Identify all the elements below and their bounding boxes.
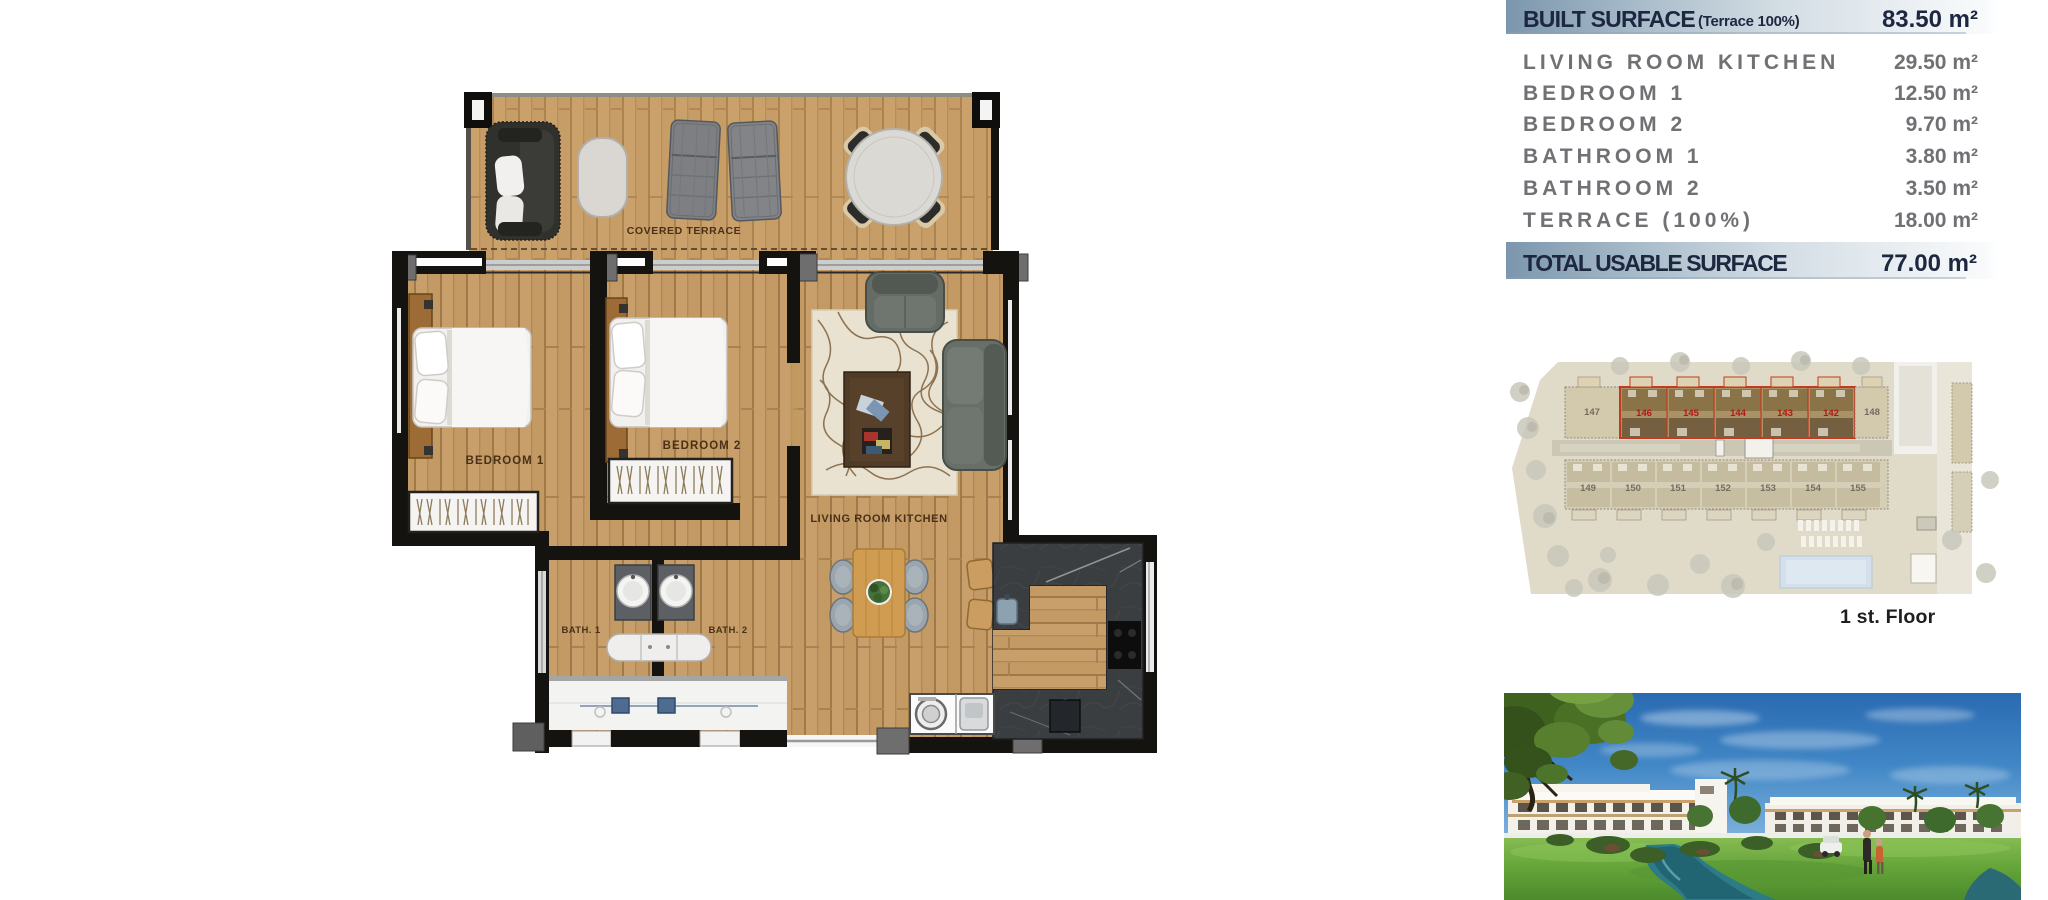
svg-text:BEDROOM 2: BEDROOM 2 xyxy=(1523,113,1686,136)
svg-text:(Terrace 100%): (Terrace 100%) xyxy=(1698,13,1800,30)
svg-text:BUILT SURFACE: BUILT SURFACE xyxy=(1523,6,1695,32)
svg-text:9.70 m²: 9.70 m² xyxy=(1906,113,1978,136)
svg-text:TOTAL USABLE SURFACE: TOTAL USABLE SURFACE xyxy=(1523,250,1787,276)
svg-text:BATH. 1: BATH. 1 xyxy=(561,625,600,636)
svg-text:BEDROOM 1: BEDROOM 1 xyxy=(466,455,545,467)
svg-text:TERRACE (100%): TERRACE (100%) xyxy=(1523,209,1754,232)
svg-text:77.00 m²: 77.00 m² xyxy=(1881,250,1977,277)
svg-text:BATHROOM 2: BATHROOM 2 xyxy=(1523,177,1703,200)
svg-text:BEDROOM 2: BEDROOM 2 xyxy=(663,440,742,452)
svg-text:LIVING ROOM KITCHEN: LIVING ROOM KITCHEN xyxy=(1523,51,1839,74)
svg-text:BATHROOM 1: BATHROOM 1 xyxy=(1523,145,1703,168)
svg-text:153: 153 xyxy=(1760,483,1776,494)
svg-text:83.50 m²: 83.50 m² xyxy=(1882,6,1978,33)
svg-text:155: 155 xyxy=(1850,483,1867,494)
svg-text:144: 144 xyxy=(1730,408,1747,419)
svg-text:BEDROOM 1: BEDROOM 1 xyxy=(1523,82,1686,105)
svg-text:154: 154 xyxy=(1805,483,1822,494)
svg-text:151: 151 xyxy=(1670,483,1687,494)
svg-text:145: 145 xyxy=(1683,408,1700,419)
svg-text:146: 146 xyxy=(1636,408,1652,419)
svg-text:149: 149 xyxy=(1580,483,1596,494)
svg-text:148: 148 xyxy=(1864,407,1880,418)
svg-text:COVERED TERRACE: COVERED TERRACE xyxy=(627,225,742,237)
svg-text:147: 147 xyxy=(1584,407,1600,418)
svg-text:1 st. Floor: 1 st. Floor xyxy=(1840,606,1936,628)
svg-text:142: 142 xyxy=(1823,408,1839,419)
svg-text:BATH. 2: BATH. 2 xyxy=(708,625,747,636)
svg-text:18.00 m²: 18.00 m² xyxy=(1894,209,1978,232)
svg-text:3.50 m²: 3.50 m² xyxy=(1906,177,1978,200)
svg-text:12.50 m²: 12.50 m² xyxy=(1894,82,1978,105)
svg-text:152: 152 xyxy=(1715,483,1731,494)
svg-text:3.80 m²: 3.80 m² xyxy=(1906,145,1978,168)
svg-text:LIVING ROOM KITCHEN: LIVING ROOM KITCHEN xyxy=(810,513,947,525)
svg-text:29.50 m²: 29.50 m² xyxy=(1894,51,1978,74)
svg-text:143: 143 xyxy=(1777,408,1793,419)
svg-text:150: 150 xyxy=(1625,483,1641,494)
